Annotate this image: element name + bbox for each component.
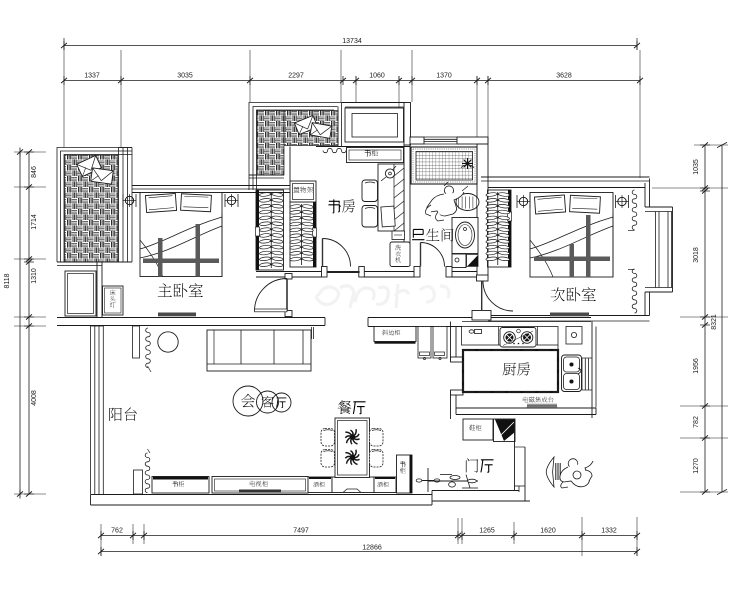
svg-text:1332: 1332 — [601, 528, 617, 535]
svg-text:3018: 3018 — [693, 247, 700, 263]
svg-text:8321: 8321 — [711, 314, 718, 330]
svg-text:1265: 1265 — [479, 528, 495, 535]
svg-text:1337: 1337 — [84, 73, 100, 80]
svg-text:1060: 1060 — [369, 73, 385, 80]
svg-text:1310: 1310 — [31, 268, 38, 284]
svg-text:1035: 1035 — [693, 159, 700, 175]
svg-text:7497: 7497 — [293, 528, 309, 535]
svg-text:13734: 13734 — [342, 38, 362, 45]
svg-text:1370: 1370 — [436, 73, 452, 80]
svg-text:762: 762 — [111, 528, 123, 535]
svg-text:12866: 12866 — [362, 545, 382, 552]
svg-text:1620: 1620 — [540, 528, 556, 535]
svg-text:4008: 4008 — [31, 390, 38, 406]
svg-text:3035: 3035 — [177, 73, 193, 80]
svg-text:2297: 2297 — [288, 73, 304, 80]
svg-text:8118: 8118 — [4, 273, 11, 288]
svg-text:3628: 3628 — [556, 73, 572, 80]
svg-text:1956: 1956 — [693, 358, 700, 374]
svg-text:1270: 1270 — [693, 458, 700, 474]
svg-text:782: 782 — [693, 416, 700, 428]
svg-text:846: 846 — [31, 166, 38, 178]
svg-text:1714: 1714 — [31, 214, 38, 230]
